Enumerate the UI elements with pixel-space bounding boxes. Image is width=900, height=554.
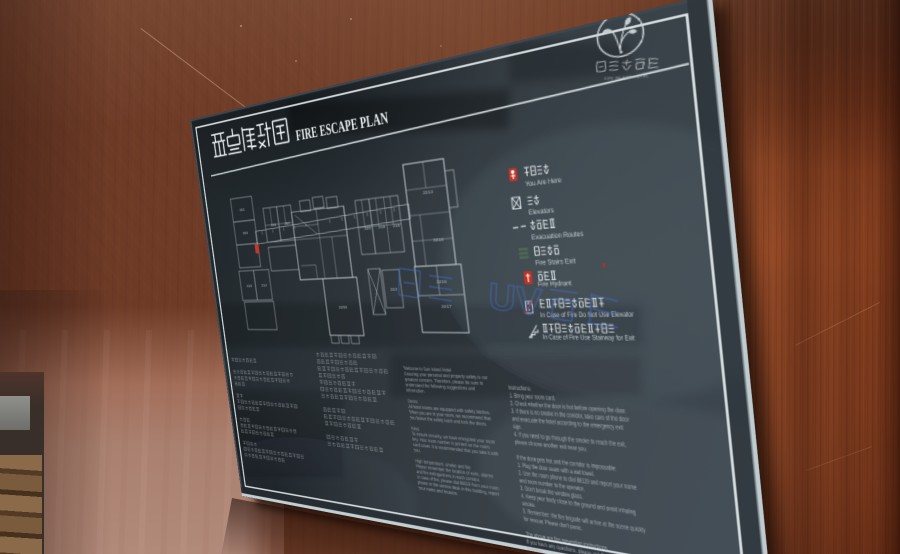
svg-text:3218: 3218 [433, 236, 444, 243]
svg-text:301: 301 [239, 207, 245, 213]
svg-text:318: 318 [246, 283, 252, 288]
svg-text:303: 303 [242, 230, 248, 235]
svg-text:In Case of Fire Do Not Use Ele: In Case of Fire Do Not Use Elevator [540, 309, 635, 319]
svg-text:3213: 3213 [422, 189, 433, 196]
svg-text:307: 307 [284, 221, 291, 227]
svg-text:318: 318 [392, 222, 400, 228]
svg-text:UV: UV [488, 276, 544, 325]
svg-text:3217: 3217 [441, 303, 452, 309]
svg-text:322: 322 [390, 286, 398, 292]
svg-text:319: 319 [378, 224, 386, 230]
svg-text:Fire Hydrant: Fire Hydrant [537, 278, 573, 288]
svg-text:320: 320 [364, 225, 372, 231]
svg-text:305: 305 [270, 222, 276, 228]
svg-text:In Case of Fire Use Stairway f: In Case of Fire Use Stairway for Exit [542, 332, 636, 342]
svg-text:you.: you. [413, 447, 421, 454]
svg-text:3216: 3216 [436, 279, 447, 285]
svg-text:314: 314 [261, 283, 267, 288]
svg-text:3208: 3208 [338, 305, 347, 310]
